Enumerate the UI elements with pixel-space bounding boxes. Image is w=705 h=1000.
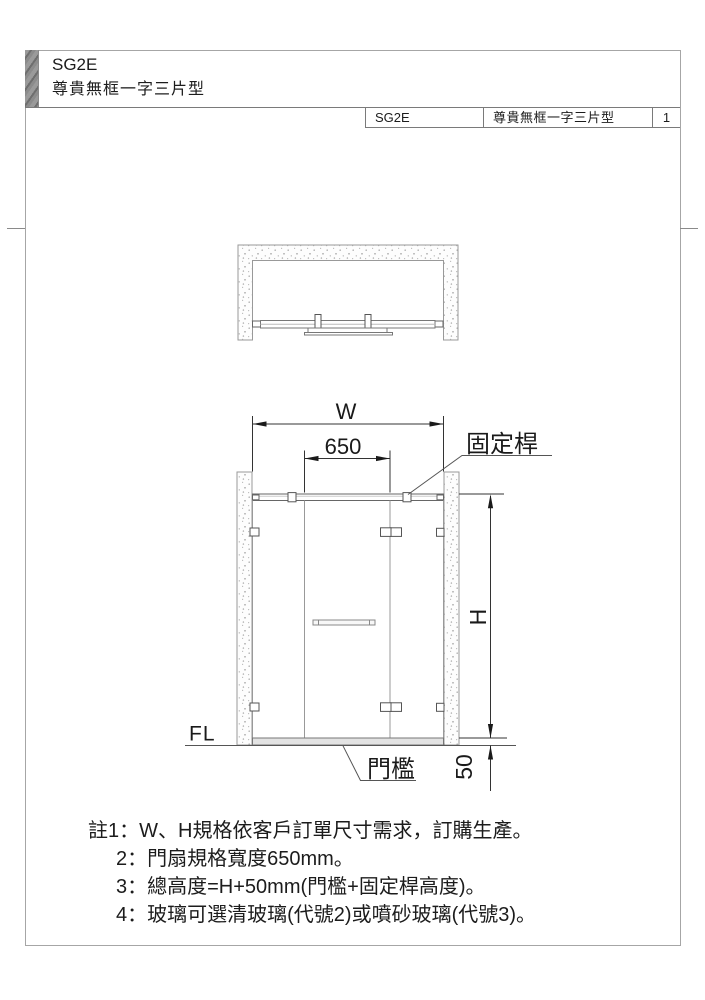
threshold-bar — [253, 738, 444, 745]
threshold-label: 門檻 — [367, 756, 415, 783]
dim-h-arrow-top — [488, 494, 493, 508]
fixed-bar-label: 固定桿 — [466, 431, 538, 458]
dim-650-label: 650 — [325, 434, 362, 459]
fixed-bar — [253, 494, 444, 501]
dim-h-arrow-bottom — [488, 724, 493, 738]
clamp-upper-middle-b — [391, 528, 402, 537]
plan-glass-clip-right — [365, 315, 371, 329]
fixed-bar-clip-left — [288, 493, 296, 502]
door-handle — [313, 620, 375, 625]
spec-sheet-page: SG2E 尊貴無框一字三片型 SG2E 尊貴無框一字三片型 1 — [0, 0, 705, 1000]
elevation-view: W 650 H 50 固定 — [185, 399, 552, 791]
fixed-bar-clip-right — [403, 493, 411, 502]
dim-650-arrow-right — [376, 456, 390, 461]
clamp-upper-middle-a — [381, 528, 392, 537]
note-line-1: 註1：W、H規格依客戶訂單尺寸需求，訂購生產。 — [88, 819, 532, 843]
plan-door-base-plate — [305, 333, 393, 336]
dim-w-arrow-left — [253, 421, 267, 426]
dim-50-arrow — [488, 746, 493, 760]
fixed-bar-leader — [408, 456, 552, 495]
floor-level-label: FL — [189, 723, 216, 746]
clamp-lower-middle-a — [381, 703, 392, 712]
note-line-4: 4：玻璃可選清玻璃(代號2)或噴砂玻璃(代號3)。 — [116, 903, 536, 927]
clamp-lower-middle-b — [391, 703, 402, 712]
dim-h-label: H — [465, 609, 491, 626]
plan-wall-bracket-left — [253, 321, 261, 327]
clamp-lower-right — [437, 703, 445, 711]
fixed-bar-end-left — [253, 495, 260, 500]
plan-wall-bracket-right — [435, 321, 443, 327]
plan-glass-clip-left — [315, 315, 321, 329]
dim-w-label: W — [336, 399, 357, 424]
plan-sliding-door-panel — [308, 328, 387, 333]
elev-wall-right — [444, 472, 459, 745]
clamp-upper-left — [250, 528, 259, 536]
clamp-lower-left — [250, 703, 259, 711]
dim-w-arrow-right — [430, 421, 444, 426]
plan-view — [238, 245, 458, 340]
note-line-2: 2：門扇規格寬度650mm。 — [116, 847, 354, 871]
note-line-3: 3：總高度=H+50mm(門檻+固定桿高度)。 — [116, 875, 486, 899]
dim-50-label: 50 — [451, 754, 477, 780]
fixed-bar-end-right — [437, 495, 444, 500]
dim-650-arrow-left — [305, 456, 319, 461]
clamp-upper-right — [437, 528, 445, 536]
